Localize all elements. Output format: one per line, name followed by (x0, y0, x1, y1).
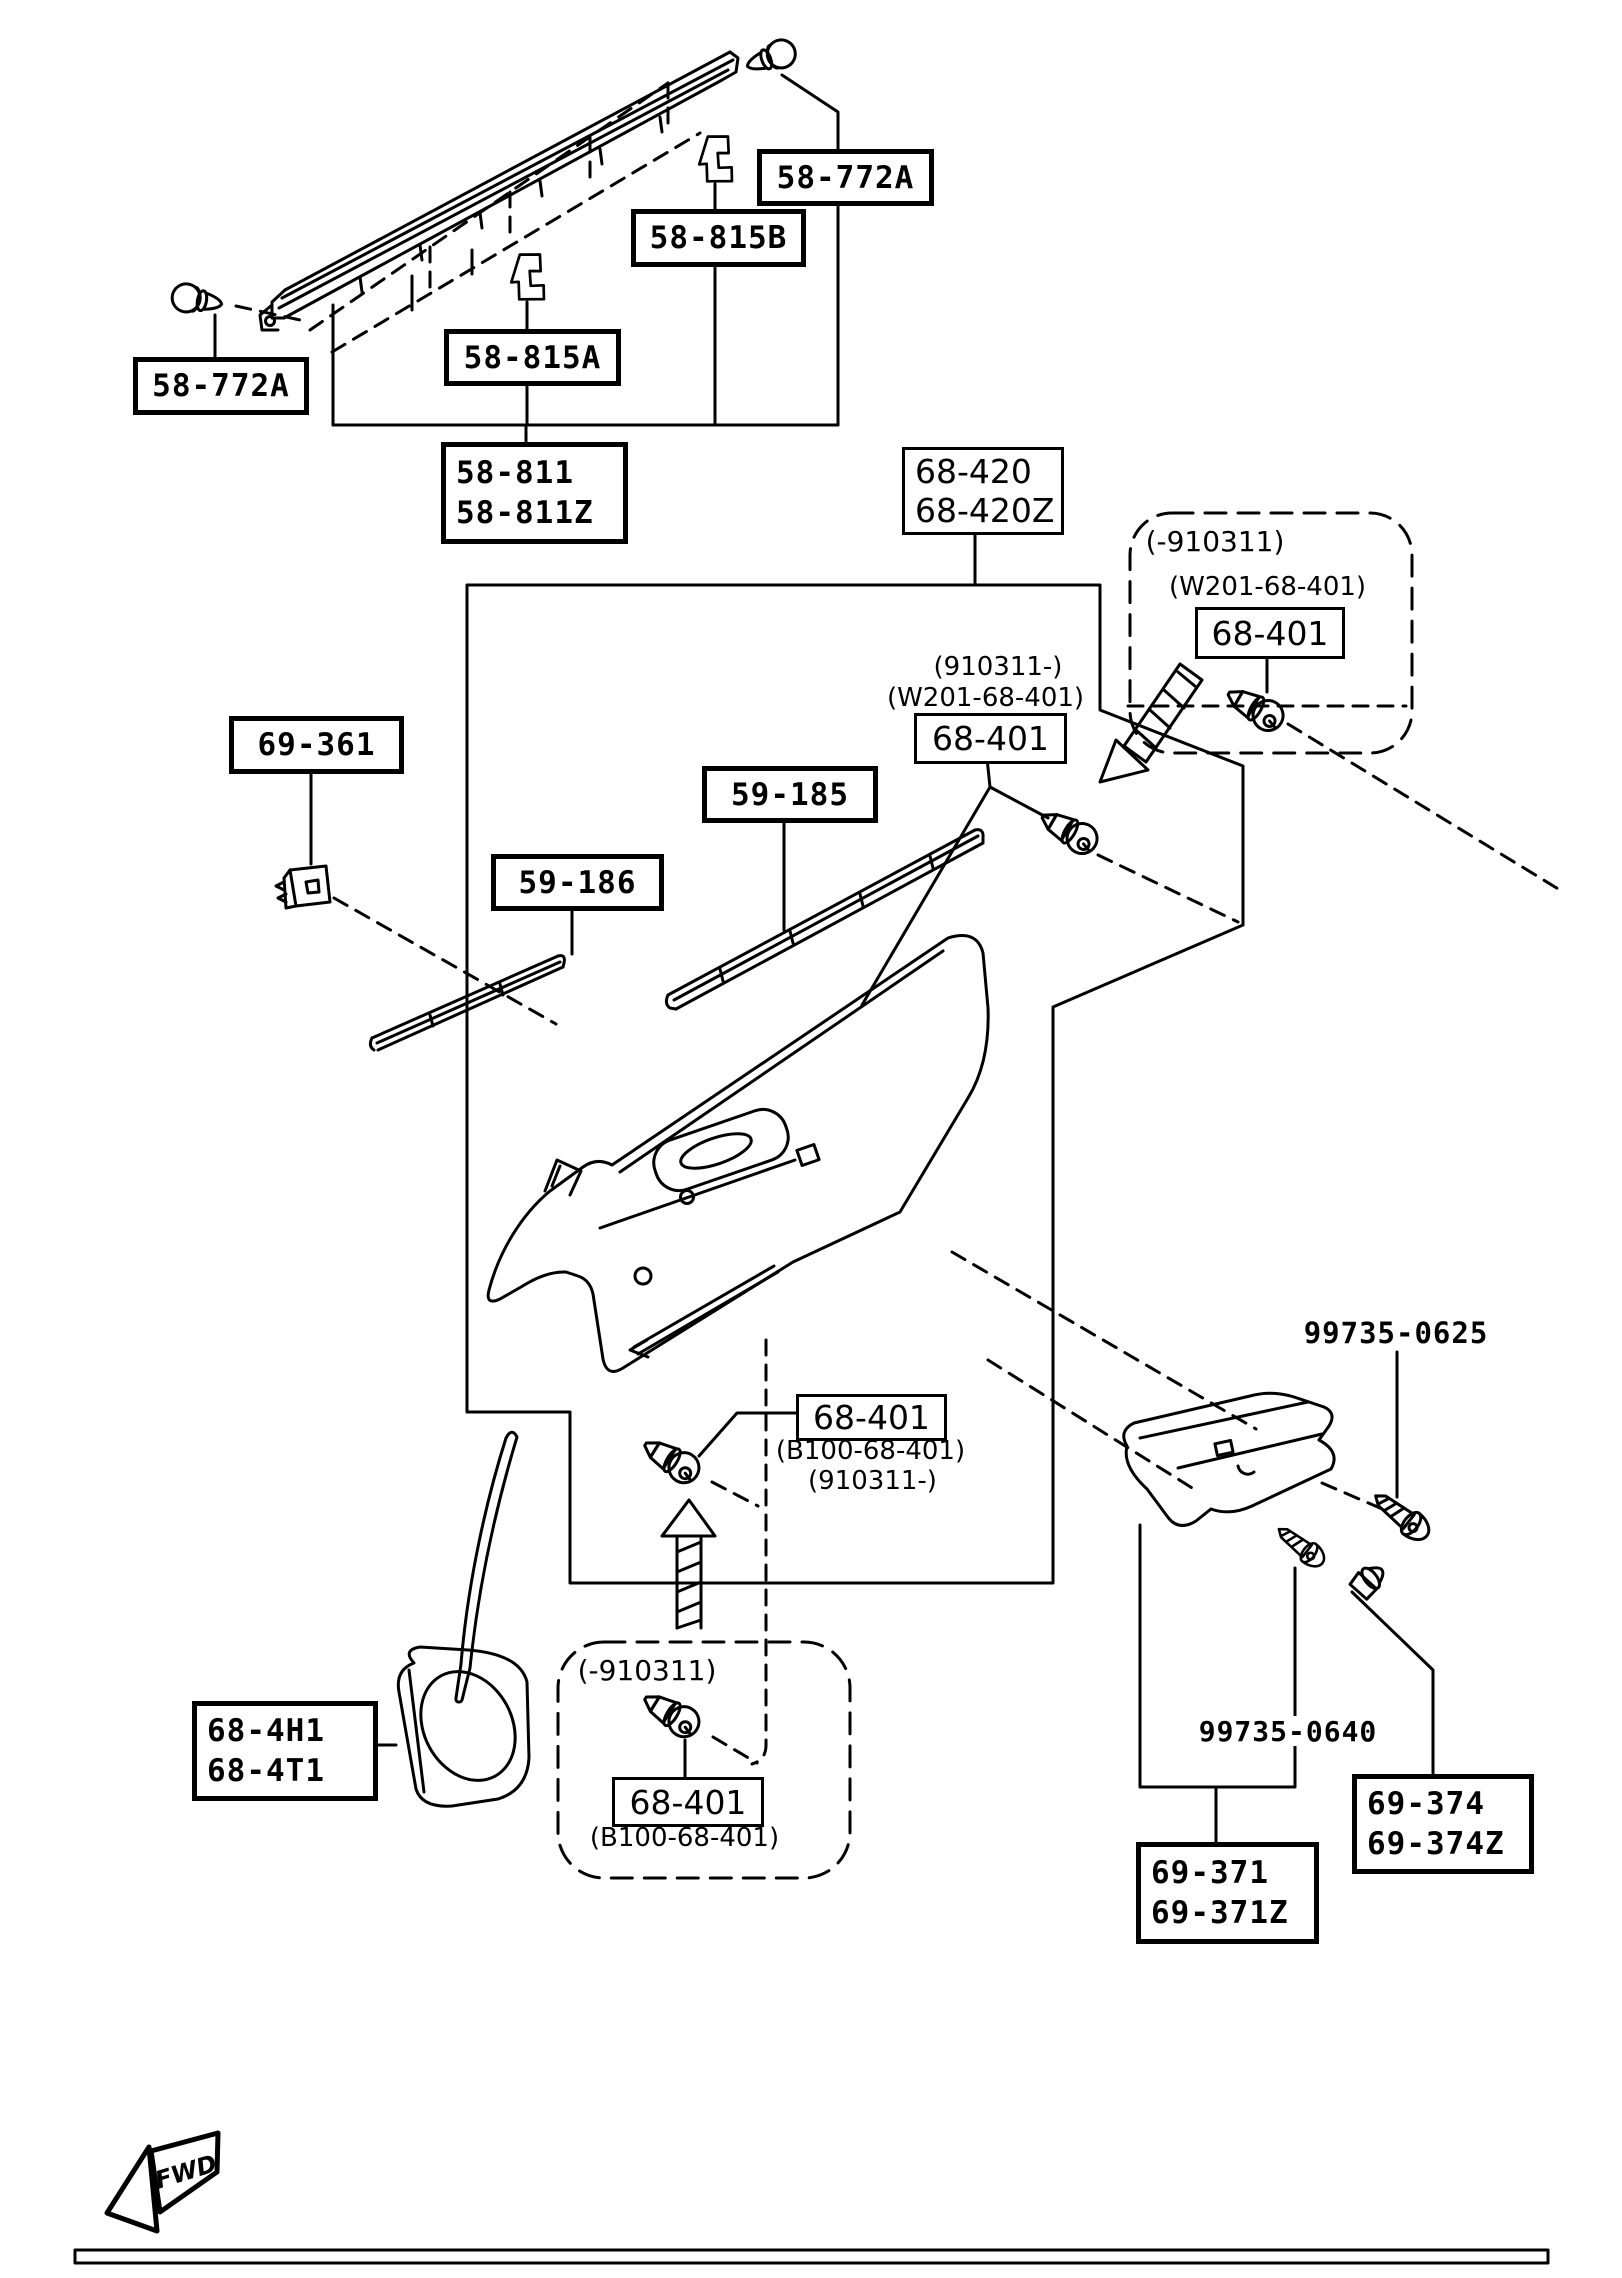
speaker-grille-drawing (398, 1647, 533, 1806)
label-59185: 59-185 (702, 766, 878, 823)
label-clip-58815a: 58-815A (444, 329, 621, 386)
label-speaker-grille-line1: 68-4H1 (207, 1711, 325, 1751)
label-69371-line1: 69-371 (1151, 1853, 1269, 1893)
label-range-mid: (910311-) (918, 652, 1078, 682)
label-69361: 69-361 (229, 716, 404, 774)
armrest-drawing (1124, 1393, 1334, 1525)
fastener-69361-drawing (276, 866, 330, 908)
label-69374-line2: 69-374Z (1367, 1824, 1505, 1864)
label-kit-bottom: (B100-68-401) (592, 1824, 777, 1852)
label-speaker-grille: 68-4H1 68-4T1 (192, 1701, 378, 1801)
parts-diagram-page: FWD 58-772A 58-772A 58-815B 58-815A 58-8… (0, 0, 1622, 2278)
door-trim-panel-drawing (488, 936, 988, 1372)
window-channel-strip (456, 1432, 517, 1702)
label-69371: 69-371 69-371Z (1136, 1842, 1319, 1944)
label-59186: 59-186 (491, 854, 664, 911)
label-kit-mid: (W201-68-401) (893, 683, 1078, 713)
label-trim-panel-line1: 68-420 (915, 452, 1032, 491)
diagram-line-art: FWD (0, 0, 1622, 2278)
belt-molding-drawing (260, 52, 738, 330)
label-speaker-grille-line2: 68-4T1 (207, 1751, 325, 1791)
label-screw-lower-mid: 68-401 (796, 1394, 947, 1441)
label-screw-right: 68-401 (1195, 607, 1345, 659)
label-99735-0640: 99735-0640 (1200, 1716, 1376, 1746)
label-trim-panel: 68-420 68-420Z (902, 447, 1064, 535)
label-kit-right: (W201-68-401) (1170, 572, 1365, 602)
label-range-lower-mid: (910311-) (805, 1468, 940, 1494)
label-screw-mid: 68-401 (914, 713, 1067, 764)
label-kit-lower-mid: (B100-68-401) (778, 1438, 963, 1464)
insert-direction-arrow-upper (1100, 664, 1202, 782)
fwd-arrow: FWD (107, 2133, 220, 2231)
label-screw-bottom: 68-401 (612, 1777, 764, 1827)
label-belt-molding-line1: 58-811 (456, 453, 574, 493)
label-69374-line1: 69-374 (1367, 1784, 1485, 1824)
page-bottom-rule (75, 2250, 1548, 2263)
fwd-label: FWD (152, 2149, 220, 2194)
label-69374: 69-374 69-374Z (1352, 1774, 1534, 1874)
label-99735-0625: 99735-0625 (1306, 1316, 1486, 1350)
armrest-leader-lines (1140, 1352, 1433, 1842)
label-belt-molding-line2: 58-811Z (456, 493, 594, 533)
label-plug-left: 58-772A (133, 357, 309, 415)
label-belt-molding: 58-811 58-811Z (441, 442, 628, 544)
label-clip-58815b: 58-815B (631, 209, 806, 267)
label-plug-right: 58-772A (757, 149, 934, 206)
molding-59185-drawing (666, 830, 983, 1009)
label-trim-panel-line2: 68-420Z (915, 491, 1055, 530)
insert-direction-arrow-lower (662, 1500, 715, 1628)
label-range-bottom: (-910311) (572, 1654, 722, 1686)
label-69371-line2: 69-371Z (1151, 1893, 1289, 1933)
label-range-right: (-910311) (1140, 524, 1290, 558)
